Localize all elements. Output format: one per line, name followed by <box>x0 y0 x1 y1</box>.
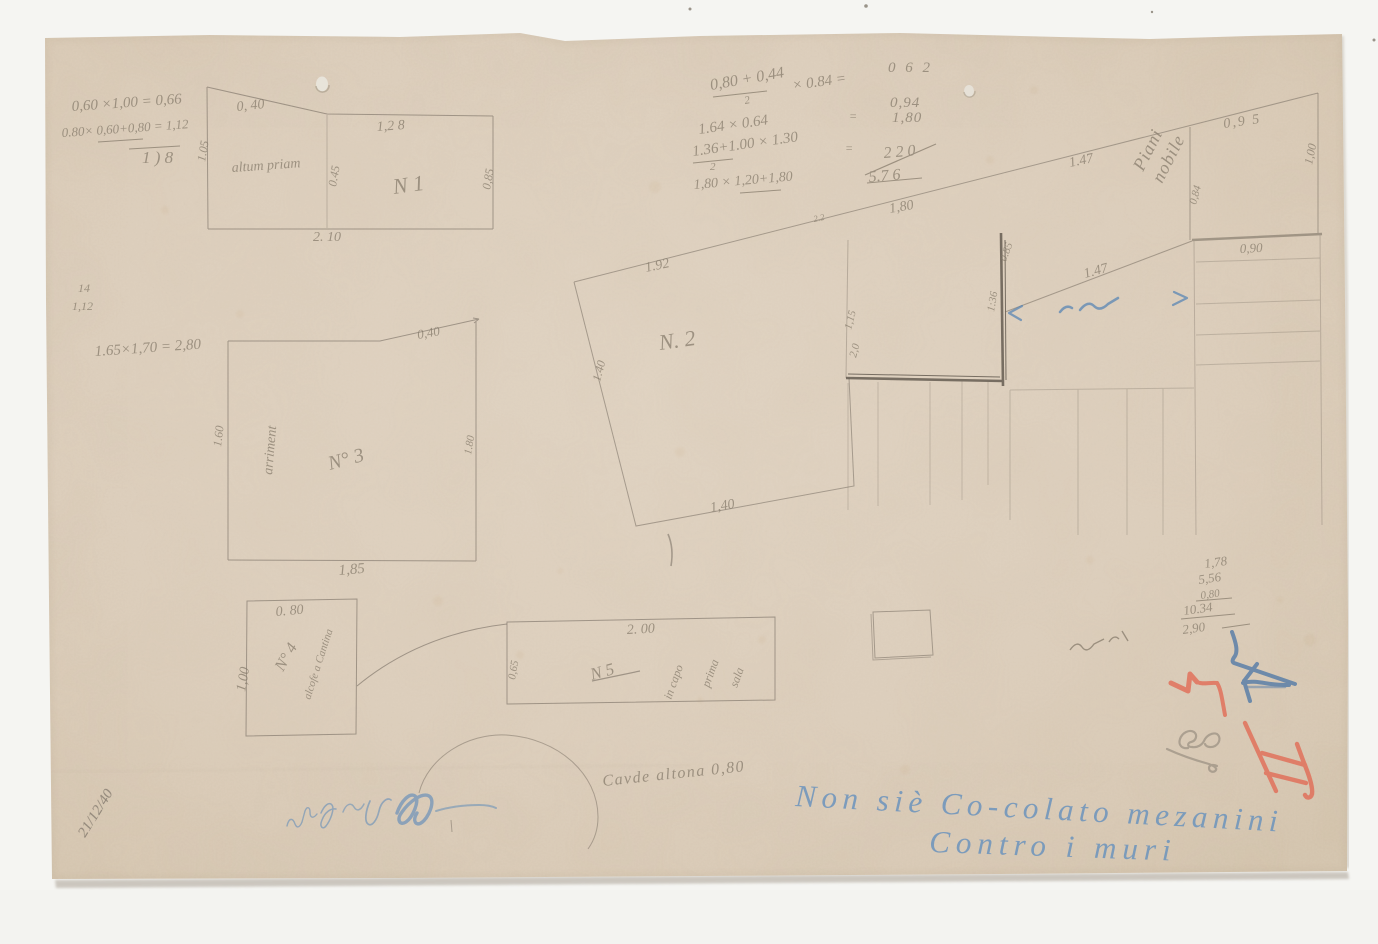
svg-text:1,12: 1,12 <box>72 299 93 313</box>
svg-text:N. 2: N. 2 <box>656 325 697 355</box>
svg-text:1.60: 1.60 <box>210 425 226 448</box>
svg-text:2. 10: 2. 10 <box>313 230 341 245</box>
svg-text:1,78: 1,78 <box>1203 553 1228 571</box>
svg-text:0,90: 0,90 <box>1239 240 1263 256</box>
svg-text:1,80: 1,80 <box>892 110 922 126</box>
svg-text:=: = <box>845 141 853 155</box>
svg-text:N 1: N 1 <box>390 170 425 199</box>
svg-text:2. 00: 2. 00 <box>626 622 655 638</box>
svg-text:0,94: 0,94 <box>890 95 920 111</box>
svg-text:5,56: 5,56 <box>1197 569 1222 587</box>
svg-text:1,85: 1,85 <box>338 561 366 579</box>
svg-text:1 ) 8: 1 ) 8 <box>142 148 174 167</box>
svg-text:2,90: 2,90 <box>1181 619 1206 637</box>
svg-text:0 6 2: 0 6 2 <box>888 60 933 76</box>
svg-text:0, 40: 0, 40 <box>236 97 265 115</box>
svg-text:2 2 0: 2 2 0 <box>883 142 916 162</box>
svg-text:5.7 6: 5.7 6 <box>868 166 901 186</box>
svg-text:1,2 8: 1,2 8 <box>376 118 405 135</box>
svg-text:0. 80: 0. 80 <box>275 603 304 620</box>
svg-text:14: 14 <box>78 281 90 295</box>
svg-text:2: 2 <box>710 161 716 173</box>
svg-text:=: = <box>849 109 857 123</box>
